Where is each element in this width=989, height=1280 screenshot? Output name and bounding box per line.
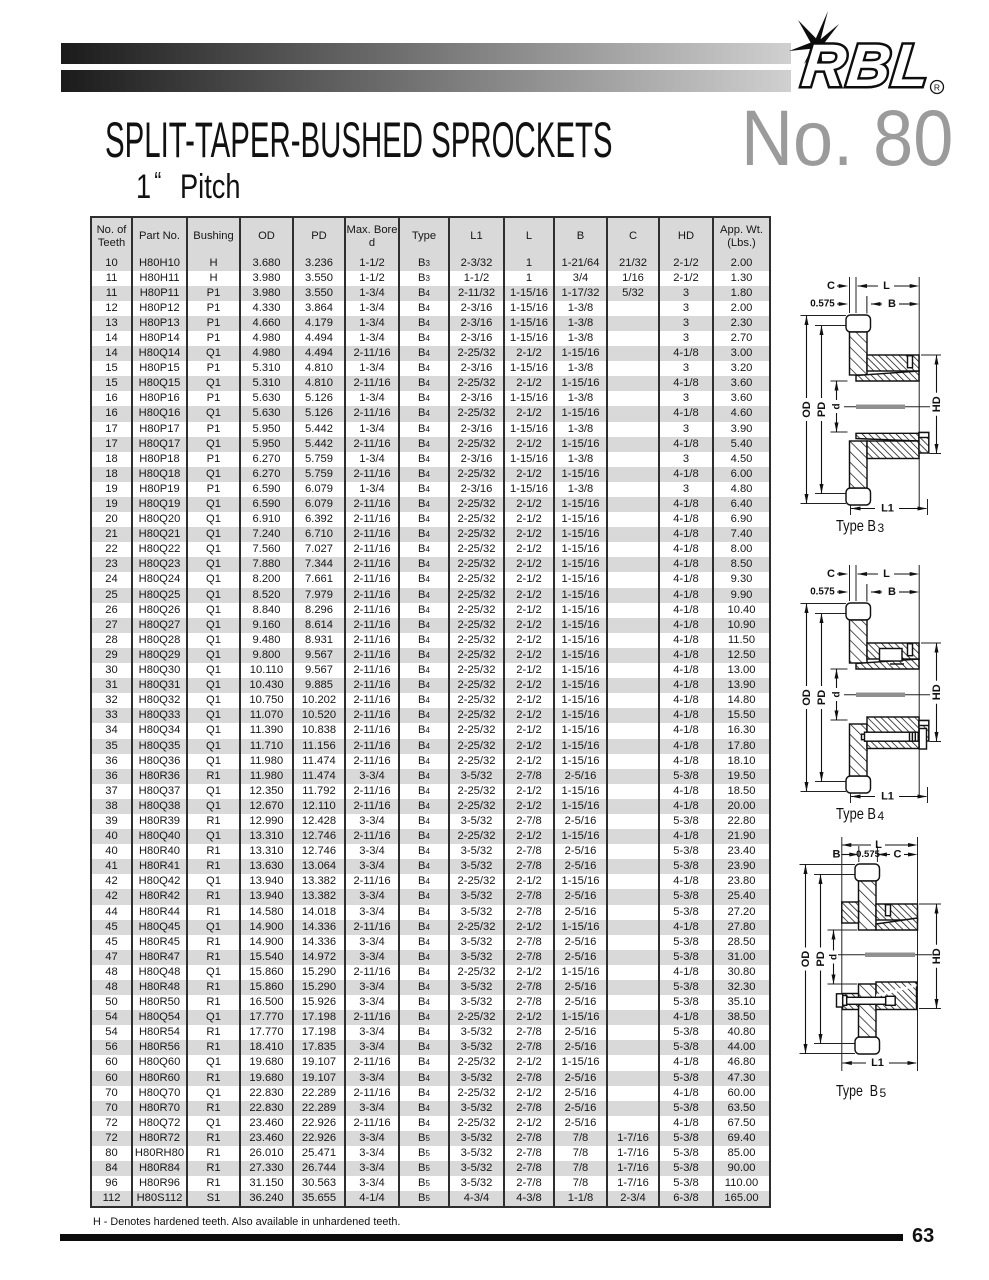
svg-text:3: 3	[878, 521, 885, 535]
svg-text:C: C	[827, 280, 835, 292]
svg-text:Type B: Type B	[836, 518, 876, 535]
svg-text:0.575: 0.575	[856, 849, 880, 860]
svg-text:0.575: 0.575	[810, 587, 835, 598]
svg-text:L1: L1	[881, 791, 894, 803]
svg-text:C: C	[827, 568, 835, 580]
svg-text:HD: HD	[931, 684, 943, 700]
svg-text:L: L	[883, 568, 890, 580]
svg-text:d: d	[832, 691, 843, 697]
svg-text:Type B: Type B	[836, 806, 876, 823]
svg-text:B: B	[833, 849, 841, 861]
svg-text:C: C	[894, 849, 902, 861]
svg-text:5: 5	[880, 1086, 887, 1100]
svg-text:B: B	[888, 586, 896, 598]
svg-text:PD: PD	[816, 402, 828, 417]
svg-text:4: 4	[878, 809, 885, 823]
svg-text:B: B	[888, 298, 896, 310]
svg-text:L1: L1	[881, 503, 894, 515]
svg-text:0.575: 0.575	[810, 299, 835, 310]
svg-text:PD: PD	[815, 951, 827, 966]
svg-text:L1: L1	[871, 1057, 884, 1069]
svg-text:OD: OD	[801, 401, 813, 418]
svg-text:OD: OD	[800, 951, 812, 968]
svg-text:L: L	[883, 280, 890, 292]
svg-text:d: d	[829, 954, 840, 960]
svg-text:OD: OD	[801, 689, 813, 706]
svg-text:PD: PD	[816, 690, 828, 705]
svg-text:HD: HD	[931, 396, 943, 412]
svg-text:d: d	[832, 403, 843, 409]
svg-text:HD: HD	[931, 948, 943, 964]
svg-text:Type B: Type B	[836, 1083, 878, 1100]
